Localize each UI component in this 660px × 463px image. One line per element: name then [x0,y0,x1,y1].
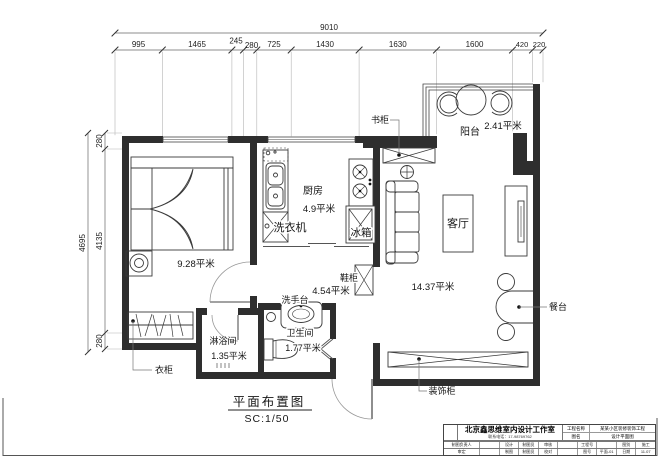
dim-seg: 245 [229,37,243,46]
kitchen: 厨房 4.9平米 洗衣机 冰箱 [263,148,375,243]
shower-label: 淋浴间 [209,335,236,346]
dim-seg: 420 [516,40,529,49]
title-block-row2: 制图负责人 设计 制图员 审核 工程号 图别 施工 [444,441,655,448]
wardrobe [128,312,193,370]
project-name-label: 工程名称 [563,425,590,432]
plan-scale-text: SC:1/50 [245,413,290,425]
dim-seg: 4135 [95,232,104,250]
dim-seg: 280 [95,334,104,348]
ceiling-light-icon [401,166,414,179]
bathroom-area-label: 1.77平米 [285,342,321,353]
dim-seg: 725 [267,40,281,49]
hallway: 4.54平米 [312,285,350,297]
shower-room: 淋浴间 1.35平米 [209,335,246,368]
balcony-label: 阳台 [460,125,480,138]
kitchen-label: 厨房 [303,184,323,197]
dim-seg: 1600 [466,40,484,49]
dim-total-top: 9010 [320,23,338,32]
decor-cabinet-label: 装饰柜 [428,385,455,396]
washing-machine-label: 洗衣机 [274,220,307,234]
tb-cell: 审定 [444,449,480,455]
tb-cell [480,449,500,455]
stove-icon [349,159,373,206]
dining-table-label: 餐台 [549,301,567,312]
shower-area-label: 1.35平米 [211,350,247,361]
entry-door [332,379,372,419]
bedroom-area-label: 9.28平米 [177,258,215,270]
living-area-label: 14.37平米 [412,281,455,293]
title-block-row3: 审定 制图 制图员 校对 图号 平面-01 日期 11.07 [444,448,655,455]
wardrobe-label: 衣柜 [155,364,173,375]
dim-seg: 1630 [389,40,407,49]
bedside-table [126,251,152,276]
bed [131,157,233,250]
tb-cell: 制图 [500,449,520,455]
balcony-chair-right [491,91,512,115]
tb-cell: 制图员 [519,449,539,455]
balcony: 阳台 2.41平米 [437,85,522,138]
plan-title-text: 平面布置图 [233,395,306,409]
washbasin-label: 洗手台 [281,294,308,305]
tb-cell [558,449,578,455]
kitchen-area-label: 4.9平米 [303,203,336,215]
fridge-label: 冰箱 [351,226,372,239]
dim-seg: 1430 [316,40,334,49]
shoe-cabinet-label: 鞋柜 [340,272,358,283]
balcony-chair-left [437,92,458,116]
tb-cell: 平面-01 [597,449,617,455]
dim-seg: 1465 [188,40,206,49]
project-name-value: 某某小区装修装饰工程 [590,425,655,432]
kitchen-counter-sink [263,148,288,212]
dim-seg: 280 [95,134,104,148]
balcony-table [456,85,486,115]
title-block: 北京鑫思维室内设计工作室 联系电话：17-98769762 工程名称 某某小区装… [443,424,656,456]
company-phone: 联系电话：17-98769762 [488,434,532,439]
dim-total-left: 4695 [78,234,87,252]
dim-seg: 220 [533,40,546,49]
dim-seg: 995 [132,40,146,49]
hall-area-label: 4.54平米 [312,285,350,297]
kitchen-sliding-opening [263,244,369,247]
bedroom-door [210,262,250,302]
company-name: 北京鑫思维室内设计工作室 [465,426,555,434]
extension-lines-left [107,133,122,349]
bathroom-label: 卫生间 [286,327,313,338]
tv-cabinet [505,186,527,256]
drawing-name-label: 图名 [563,433,590,440]
living-label: 客厅 [447,216,469,230]
floor-drain-icon [267,313,276,322]
dim-seg: 280 [245,41,259,50]
floor-plan-sheet: 9010 995 1465 245 280 725 1430 1630 1600… [0,0,660,463]
plan-title: 平面布置图 SC:1/50 [228,395,312,425]
sofa [386,181,419,264]
title-block-spacer [444,425,458,440]
drawing-name-value: 设计平面图 [590,433,655,440]
tb-cell: 日期 [617,449,637,455]
tb-cell: 11.07 [636,449,655,455]
washbasin [281,302,322,328]
floor-plan-drawing: 9010 995 1465 245 280 725 1430 1630 1600… [0,0,660,463]
dimension-chain-left: 4695 280 4135 280 [78,130,122,355]
balcony-area-label: 2.41平米 [484,120,522,132]
dimension-chain-top: 9010 995 1465 245 280 725 1430 1630 1600… [112,23,546,140]
tb-cell: 图号 [578,449,598,455]
shower-drain-icon [217,363,229,368]
bookcase-label: 书柜 [371,114,389,125]
tb-cell: 校对 [539,449,559,455]
